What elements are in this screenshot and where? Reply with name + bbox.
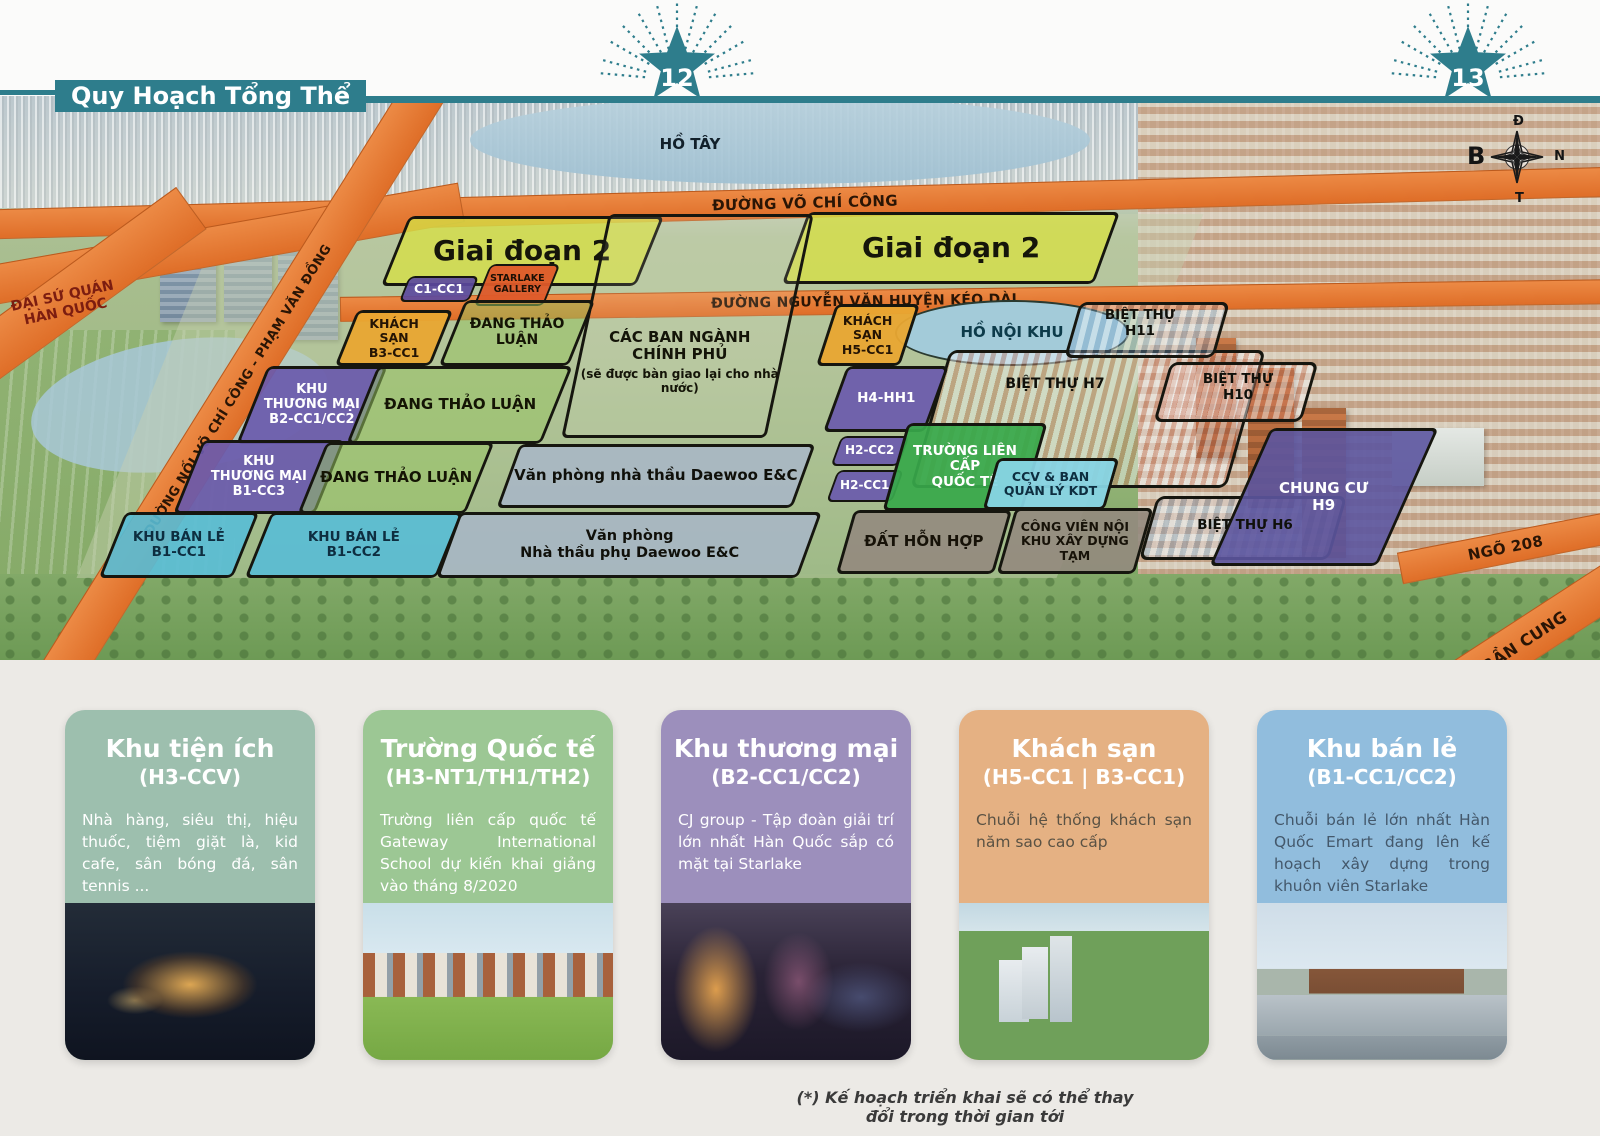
zone-c1-cc1: C1-CC1: [399, 276, 480, 302]
villa-label-h6: BIỆT THỰ H6: [1165, 518, 1325, 534]
inner-lake-label: HỒ NỘI KHU: [961, 324, 1064, 341]
milestone-number: 12: [660, 64, 693, 92]
zone-vp-daewoo-phu: Văn phòng Nhà thầu phụ Daewoo E&C: [436, 512, 822, 578]
bottom-green-strip: [0, 574, 1600, 660]
west-lake-water: [470, 96, 1090, 184]
card-code: (H5-CC1 | B3-CC1): [959, 765, 1209, 789]
card-body: CJ group - Tập đoàn giải trí lớn nhất Hà…: [678, 809, 894, 875]
teal-line-left-stub: [0, 90, 57, 95]
card-code: (B2-CC1/CC2): [661, 765, 911, 789]
card-title: Khu thương mại: [667, 734, 905, 763]
card-body: Trường liên cấp quốc tế Gateway Internat…: [380, 809, 596, 897]
starlake-masterplan-infographic: ĐƯỜNG VÕ CHÍ CÔNG ĐƯỜNG NGUYỄN VĂN HUYỆN…: [0, 0, 1600, 1136]
card-title: Khách sạn: [965, 734, 1203, 763]
road-label-vo-chi-cong: ĐƯỜNG VÕ CHÍ CÔNG: [712, 192, 898, 215]
villa-label-h7: BIỆT THỰ H7: [975, 376, 1135, 392]
card-body: Chuỗi hệ thống khách sạn năm sao cao cấp: [976, 809, 1192, 853]
zone-ccv-ban-quan-ly: CCV & BAN QUẢN LÝ KDT: [983, 458, 1120, 510]
info-card-truong-quoc-te: Trường Quốc tế (H3-NT1/TH1/TH2) Trường l…: [363, 710, 613, 1060]
compass-south-label: N: [1554, 149, 1565, 164]
zone-vp-daewoo: Văn phòng nhà thầu Daewoo E&C: [496, 444, 815, 508]
zone-dat-hon-hop: ĐẤT HỖN HỢP: [836, 510, 1012, 574]
compass-west-label: T: [1515, 191, 1524, 206]
west-lake-label: HỒ TÂY: [610, 136, 770, 153]
info-card-khach-san: Khách sạn (H5-CC1 | B3-CC1) Chuỗi hệ thố…: [959, 710, 1209, 1060]
zone-dang-thao-luan-3: ĐANG THẢO LUẬN: [297, 442, 494, 514]
page-title-banner: Quy Hoạch Tổng Thể: [55, 80, 366, 112]
star-burst-icon: 13: [1383, 0, 1553, 106]
card-title: Khu tiện ích: [71, 734, 309, 763]
zone-giai-doan-2-east: Giai đoạn 2: [782, 212, 1120, 284]
card-photo-mall: [661, 903, 911, 1060]
card-photo-school: [363, 903, 613, 1060]
villa-label-h10: BIỆT THỰ H10: [1178, 372, 1298, 403]
compass-icon: [1489, 129, 1545, 185]
card-code: (H3-NT1/TH1/TH2): [363, 765, 613, 789]
compass-rose: Đ N T B: [1477, 116, 1561, 200]
zone-government-note: (sẽ được bàn giao lại cho nhà nước): [580, 368, 779, 395]
footnote: (*) Kế hoạch triển khai sẽ có thể thay đ…: [790, 1088, 1140, 1126]
zone-cong-vien-noi-khu: CÔNG VIÊN NỘI KHU XÂY DỰNG TẠM: [997, 508, 1154, 574]
compass-east-label: Đ: [1513, 114, 1524, 129]
card-code: (H3-CCV): [65, 765, 315, 789]
compass-north-label: B: [1467, 142, 1485, 170]
milestone-number: 13: [1451, 64, 1484, 92]
card-photo-hotel-towers: [959, 903, 1209, 1060]
info-card-khu-tien-ich: Khu tiện ích (H3-CCV) Nhà hàng, siêu thị…: [65, 710, 315, 1060]
zone-government-label: CÁC BAN NGÀNH CHÍNH PHỦ: [609, 329, 750, 363]
masterplan-map: ĐƯỜNG VÕ CHÍ CÔNG ĐƯỜNG NGUYỄN VĂN HUYỆN…: [0, 96, 1600, 660]
zone-dang-thao-luan-2: ĐANG THẢO LUẬN: [346, 366, 573, 444]
card-photo-emart: [1257, 903, 1507, 1060]
zone-khu-ban-le-b1-cc1: KHU BÁN LẺ B1-CC1: [99, 512, 260, 578]
card-body: Chuỗi bán lẻ lớn nhất Hàn Quốc Emart đan…: [1274, 809, 1490, 897]
card-body: Nhà hàng, siêu thị, hiệu thuốc, tiệm giặ…: [82, 809, 298, 897]
villa-label-h11: BIỆT THỰ H11: [1085, 308, 1195, 339]
info-card-khu-ban-le: Khu bán lẻ (B1-CC1/CC2) Chuỗi bán lẻ lớn…: [1257, 710, 1507, 1060]
zone-dang-thao-luan-1: ĐANG THẢO LUẬN: [439, 300, 596, 366]
card-title: Khu bán lẻ: [1263, 734, 1501, 763]
card-title: Trường Quốc tế: [369, 734, 607, 763]
milestone-star-13: 13: [1383, 0, 1553, 110]
zone-khu-ban-le-b1-cc2: KHU BÁN LẺ B1-CC2: [245, 512, 464, 578]
star-burst-icon: 12: [592, 0, 762, 106]
milestone-star-12: 12: [592, 0, 762, 110]
page-title: Quy Hoạch Tổng Thể: [71, 82, 350, 110]
info-card-khu-thuong-mai: Khu thương mại (B2-CC1/CC2) CJ group - T…: [661, 710, 911, 1060]
card-code: (B1-CC1/CC2): [1257, 765, 1507, 789]
card-photo-night-clubhouse: [65, 903, 315, 1060]
